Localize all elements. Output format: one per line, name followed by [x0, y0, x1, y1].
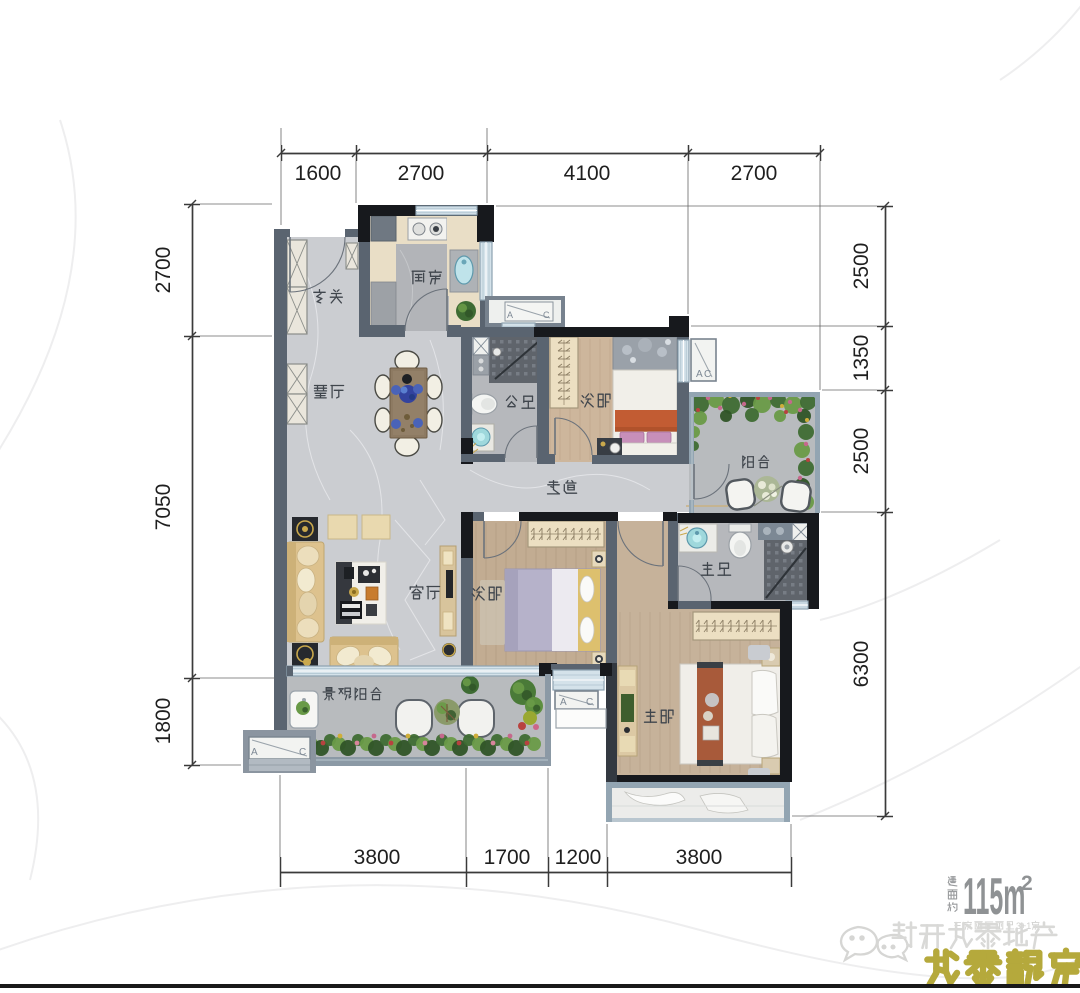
svg-text:2700: 2700	[731, 162, 778, 185]
svg-text:2500: 2500	[850, 243, 873, 290]
svg-text:4100: 4100	[564, 162, 611, 185]
svg-text:C: C	[704, 369, 711, 380]
svg-text:3800: 3800	[676, 846, 723, 869]
svg-text:7050: 7050	[152, 484, 175, 531]
svg-text:1600: 1600	[295, 162, 342, 185]
svg-text:115m: 115m	[963, 867, 1025, 926]
svg-text:1200: 1200	[555, 846, 602, 869]
svg-text:1350: 1350	[850, 335, 873, 382]
svg-text:3800: 3800	[354, 846, 401, 869]
svg-text:1800: 1800	[152, 698, 175, 745]
svg-text:A: A	[560, 697, 567, 708]
svg-text:2700: 2700	[398, 162, 445, 185]
svg-text:A: A	[696, 369, 703, 380]
svg-text:3+1: 3+1	[1016, 921, 1031, 931]
svg-text:C: C	[586, 697, 593, 708]
svg-text:2700: 2700	[152, 247, 175, 294]
svg-text:A: A	[507, 310, 513, 320]
svg-text:C: C	[543, 310, 550, 320]
svg-text:2: 2	[1021, 872, 1033, 895]
svg-text:2500: 2500	[850, 428, 873, 475]
svg-text:A: A	[251, 747, 258, 758]
svg-text:1700: 1700	[484, 846, 531, 869]
svg-text:C: C	[299, 747, 306, 758]
svg-text:6300: 6300	[850, 641, 873, 688]
